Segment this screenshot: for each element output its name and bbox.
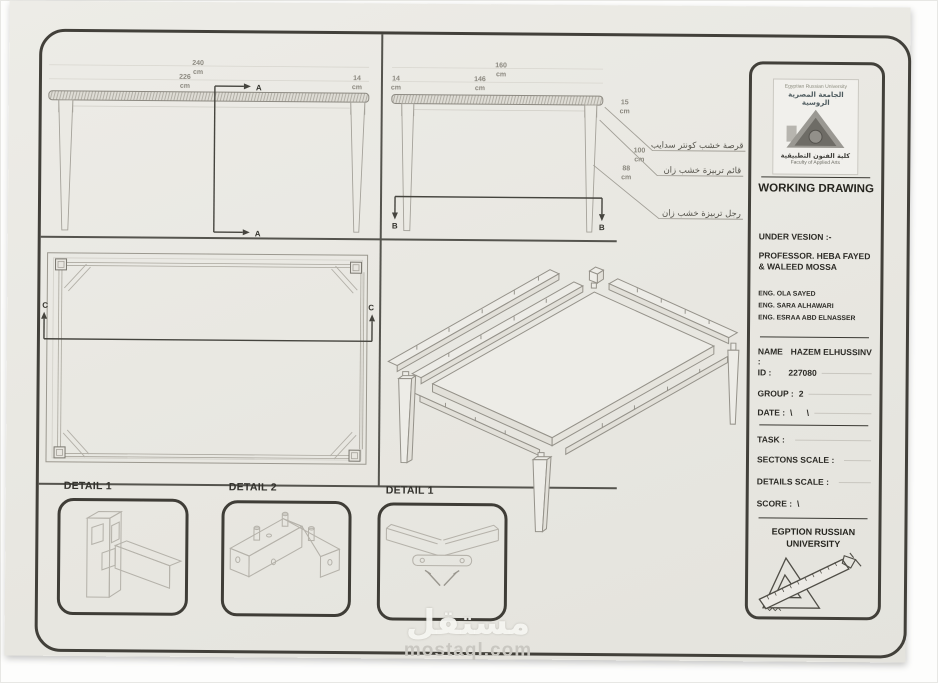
dim-unit: cm	[475, 85, 485, 92]
screws	[425, 570, 459, 585]
score-label: SCORE :	[757, 498, 792, 508]
detail-1-drawing	[60, 501, 186, 613]
group-label: GROUP :	[757, 388, 793, 398]
divider	[759, 424, 868, 426]
detail-3-label: DETAIL 1	[386, 484, 434, 496]
divider	[760, 336, 869, 338]
professor-line-2: & WALEED MOSSA	[758, 261, 876, 272]
photo-of-drawing-sheet: 240 cm 226 cm 14 cm A A 160 cm	[0, 0, 938, 683]
blank-line	[795, 440, 871, 442]
dim-side-right: 146	[474, 76, 486, 83]
sections-scale-field: SECTONS SCALE :	[757, 454, 871, 465]
logo-university-en: Egyptian Russian University	[774, 83, 858, 90]
section-label-b-left: B	[392, 221, 398, 230]
tabletop-outline	[46, 253, 368, 465]
section-label-c-left: C	[42, 301, 48, 310]
name-value: HAZEM ELHUSSINV	[791, 347, 872, 358]
dim-top-thickness: 15	[621, 99, 629, 106]
score-field: SCORE : \	[757, 498, 871, 509]
date-value: \ \	[790, 408, 809, 418]
section-label-c-right: C	[368, 303, 374, 312]
details-scale-label: DETAILS SCALE :	[757, 476, 829, 487]
engineer-3: ENG. ESRAA ABD ELNASSER	[758, 314, 876, 322]
sections-scale-label: SECTONS SCALE :	[757, 454, 834, 465]
dim-unit: cm	[620, 108, 630, 115]
blank-line	[814, 413, 871, 414]
table-leg-right	[350, 102, 365, 232]
university-footer-line-2: UNIVERSITY	[748, 537, 878, 550]
section-line-b	[395, 197, 602, 215]
university-logo: Egyptian Russian University الجامعة المص…	[772, 78, 859, 175]
legs-plan	[54, 259, 362, 461]
detail-2-drawing	[224, 503, 349, 614]
engineer-1: ENG. OLA SAYED	[758, 290, 876, 298]
tabletop-side	[392, 94, 603, 105]
callout-leaders	[593, 107, 746, 219]
logo-university-ar: الجامعة المصرية الروسية	[774, 90, 858, 107]
detail-3-drawing	[380, 505, 505, 618]
dim-unit: cm	[193, 69, 203, 76]
dim-unit: cm	[391, 84, 401, 91]
section-label-a-bottom: A	[255, 229, 261, 238]
dim-front-left: 226	[179, 74, 191, 81]
dim-height: 100	[634, 147, 646, 154]
task-field: TASK :	[757, 434, 871, 445]
sheet-title: WORKING DRAWING	[751, 182, 881, 195]
dim-front-total: 240	[192, 60, 204, 67]
plan-view: C C	[37, 246, 384, 481]
group-value: 2	[799, 389, 804, 399]
group-field: GROUP : 2	[757, 388, 871, 399]
id-label: ID :	[758, 367, 772, 377]
apron-frame	[58, 262, 365, 458]
task-label: TASK :	[757, 434, 785, 444]
dim-side-total: 160	[495, 62, 507, 69]
table-leg-right	[584, 105, 597, 232]
tabletop-front	[49, 91, 369, 103]
supervision-heading: UNDER VESION :-	[759, 231, 877, 242]
detail-2-label: DETAIL 2	[229, 481, 277, 493]
blank-line	[822, 373, 872, 374]
date-label: DATE :	[757, 407, 785, 417]
dim-unit: cm	[496, 71, 506, 78]
detail-2-box	[221, 500, 352, 617]
divider	[759, 517, 868, 519]
university-footer-line-1: EGPTION RUSSIAN	[748, 525, 878, 538]
score-value: \	[797, 499, 799, 509]
logo-faculty-en: Faculty of Applied Arts	[773, 159, 857, 166]
professor-line-1: PROFESSOR. HEBA FAYED	[759, 249, 877, 262]
drawing-sheet: 240 cm 226 cm 14 cm A A 160 cm	[4, 0, 910, 662]
name-field: NAME : HAZEM ELHUSSINV	[758, 346, 872, 367]
name-label: NAME :	[758, 346, 786, 366]
title-block: Egyptian Russian University الجامعة المص…	[745, 61, 885, 620]
section-label-a-top: A	[256, 83, 262, 92]
id-value: 227080	[788, 368, 816, 378]
table-leg-left	[58, 100, 73, 230]
divider	[761, 176, 870, 178]
dim-unit: cm	[180, 83, 190, 90]
dim-unit: cm	[621, 174, 631, 181]
date-field: DATE : \ \	[757, 407, 871, 418]
table-leg-left	[401, 104, 414, 231]
callout-post: قائم تربيزة خشب زان	[663, 166, 741, 177]
section-label-b-right: B	[599, 223, 605, 232]
front-elevation-view: 240 cm 226 cm 14 cm A A	[39, 38, 386, 241]
isometric-exploded-view	[384, 255, 742, 538]
detail-1-label: DETAIL 1	[64, 480, 112, 492]
side-elevation-view: 160 cm 14 cm 146 cm 15 cm 100 cm 88 cm ق…	[385, 40, 749, 248]
dim-front-overhang: 14	[353, 75, 361, 82]
callout-leg: رجل تربيزة خشب زان	[662, 209, 741, 220]
blank-line	[844, 460, 871, 461]
dim-unit: cm	[634, 156, 644, 163]
dim-leg-height: 88	[622, 165, 630, 172]
section-line-c	[44, 319, 372, 342]
section-line-a	[214, 86, 244, 232]
detail-1-box	[57, 498, 189, 616]
dim-unit: cm	[352, 84, 362, 91]
dim-side-left: 14	[392, 75, 400, 82]
details-scale-field: DETAILS SCALE :	[757, 476, 871, 487]
id-field: ID : 227080	[758, 367, 872, 378]
blank-line	[839, 482, 871, 483]
callout-tabletop: قرصة خشب كونتر سدايب	[651, 141, 744, 152]
pyramid-logo-icon	[782, 108, 848, 153]
corner-braces	[63, 264, 358, 459]
blank-line	[808, 394, 871, 395]
detail-3-box	[377, 502, 508, 621]
engineer-2: ENG. SARA ALHAWARI	[758, 302, 876, 310]
drafting-tools-icon	[756, 550, 870, 613]
